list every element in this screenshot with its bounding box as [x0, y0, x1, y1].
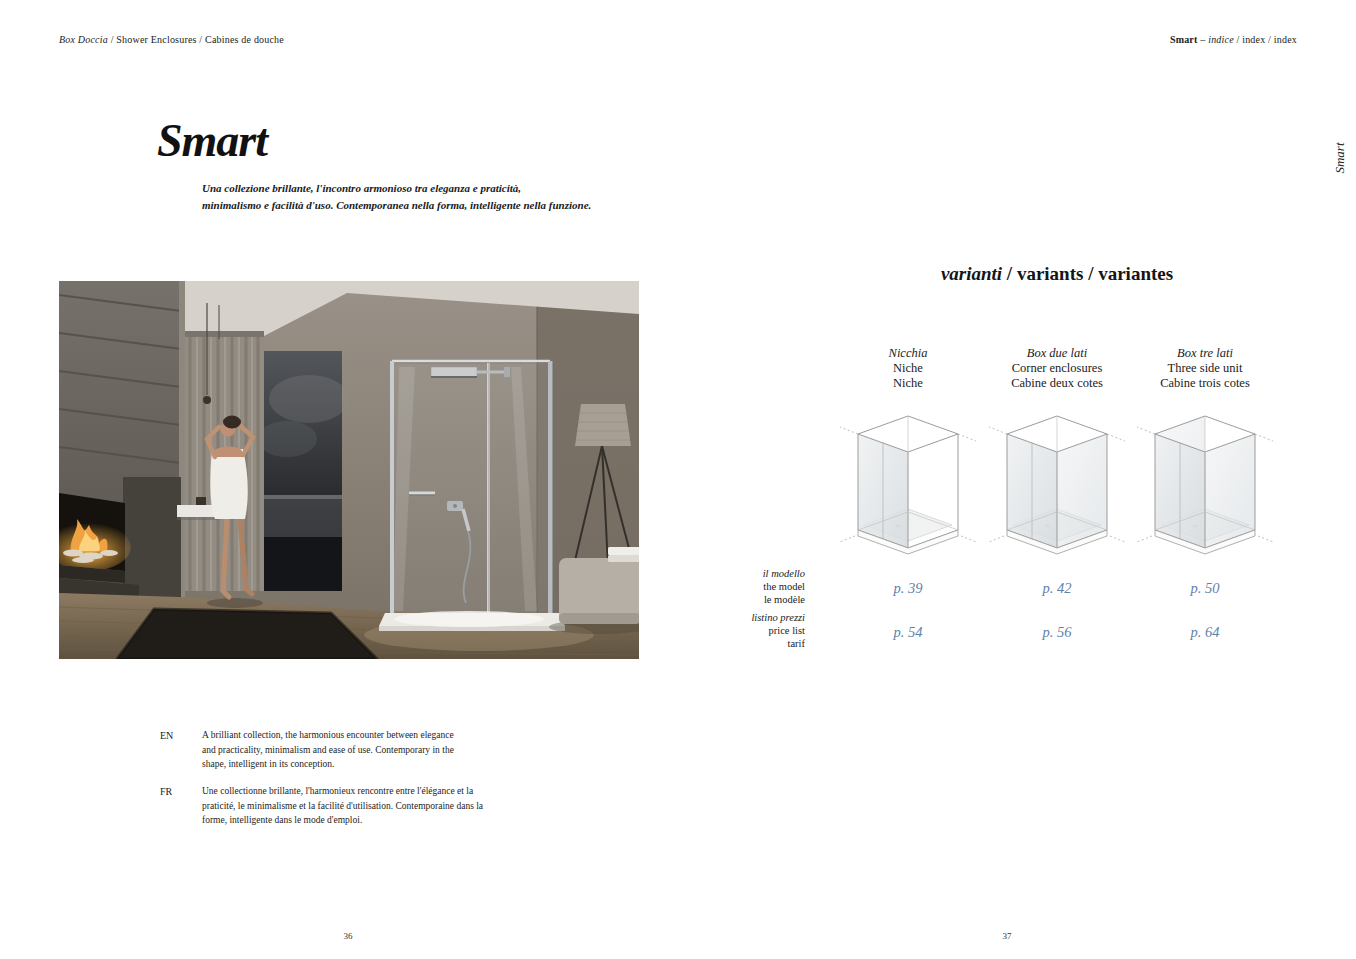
variant-name-it: Nicchia	[833, 346, 983, 361]
variant-name-it: Box due lati	[982, 346, 1132, 361]
page-number-right: 37	[987, 931, 1027, 941]
pouf	[549, 547, 639, 634]
row-label-price: listino prezzi price list tarif	[655, 612, 805, 650]
index-rest: / index / index	[1234, 34, 1297, 45]
description-fr: Une collectionne brillante, l'harmonieux…	[202, 784, 494, 828]
variant-name-en: Niche	[833, 361, 983, 376]
index-collection: Smart	[1170, 34, 1198, 45]
row-label-model-it: il modello	[655, 568, 805, 581]
price-page-ref-niche: p. 54	[833, 624, 983, 641]
variants-heading-italic: varianti	[941, 263, 1002, 284]
catalog-spread: Box Doccia / Shower Enclosures / Cabines…	[0, 0, 1356, 959]
price-page-ref-three-side: p. 64	[1130, 624, 1280, 641]
index-italic: indice	[1208, 34, 1234, 45]
variant-name-fr: Cabine deux cotes	[982, 376, 1132, 391]
variant-name-it: Box tre lati	[1130, 346, 1280, 361]
bathroom-photo	[59, 281, 639, 659]
model-page-ref-niche: p. 39	[833, 580, 983, 597]
variants-heading: varianti / variants / variantes	[857, 263, 1257, 285]
hero-photo	[59, 281, 639, 659]
variant-name-en: Corner enclosures	[982, 361, 1132, 376]
variant-name-fr: Niche	[833, 376, 983, 391]
side-tab-label: Smart	[1332, 142, 1348, 173]
variants-heading-rest: / variants / variantes	[1002, 263, 1173, 284]
side-tab: Smart	[1312, 126, 1356, 190]
page-title: Smart	[157, 114, 267, 167]
collection-subtitle: Una collezione brillante, l'incontro arm…	[202, 180, 591, 214]
variant-title-corner: Box due lati Corner enclosures Cabine de…	[982, 346, 1132, 391]
row-label-price-it: listino prezzi	[655, 612, 805, 625]
row-label-model: il modello the model le modèle	[655, 568, 805, 606]
towels	[608, 547, 639, 562]
model-page-ref-corner: p. 42	[982, 580, 1132, 597]
breadcrumb: Box Doccia / Shower Enclosures / Cabines…	[59, 34, 284, 45]
subtitle-line-2: minimalismo e facilità d'uso. Contempora…	[202, 197, 591, 214]
row-label-price-en: price list	[655, 625, 805, 638]
corner-enclosure-diagram	[987, 410, 1127, 560]
door-handle	[409, 493, 435, 495]
variant-name-fr: Cabine trois cotes	[1130, 376, 1280, 391]
price-page-ref-corner: p. 56	[982, 624, 1132, 641]
row-label-model-en: the model	[655, 581, 805, 594]
language-label-en: EN	[160, 730, 173, 741]
variant-title-niche: Nicchia Niche Niche	[833, 346, 983, 391]
description-en: A brilliant collection, the harmonious e…	[202, 728, 454, 772]
language-label-fr: FR	[160, 786, 172, 797]
row-label-model-fr: le modèle	[655, 594, 805, 607]
index-dash: –	[1198, 34, 1209, 45]
breadcrumb-collection: Box Doccia	[59, 34, 108, 45]
three-side-unit-diagram	[1135, 410, 1275, 560]
model-page-ref-three-side: p. 50	[1130, 580, 1280, 597]
row-label-price-fr: tarif	[655, 638, 805, 651]
variant-title-three-side: Box tre lati Three side unit Cabine troi…	[1130, 346, 1280, 391]
variant-name-en: Three side unit	[1130, 361, 1280, 376]
subtitle-line-1: Una collezione brillante, l'incontro arm…	[202, 180, 591, 197]
breadcrumb-rest: / Shower Enclosures / Cabines de douche	[108, 34, 284, 45]
shower-enclosure	[379, 361, 565, 631]
niche-diagram	[838, 410, 978, 560]
page-number-left: 36	[328, 931, 368, 941]
index-reference: Smart – indice / index / index	[1170, 34, 1297, 45]
